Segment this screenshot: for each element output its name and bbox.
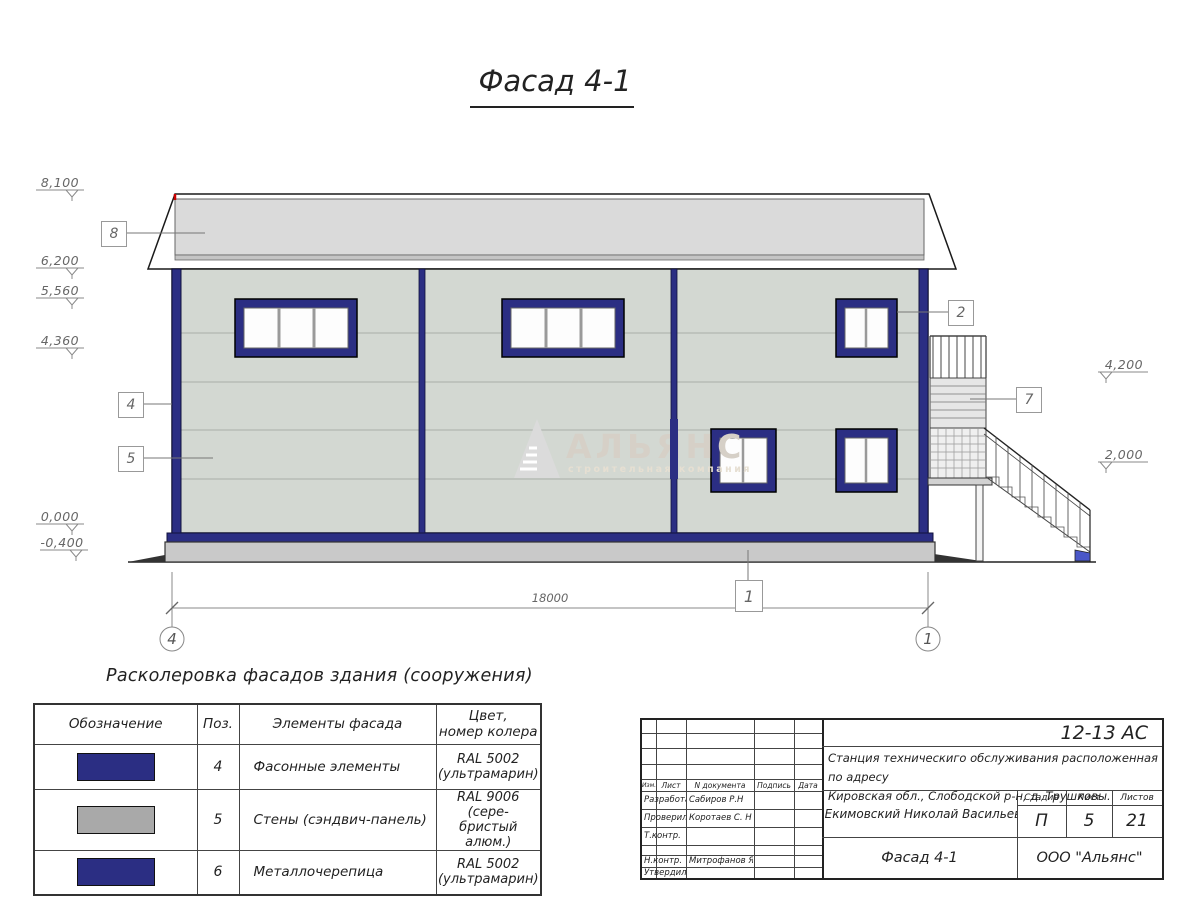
elevation-value: 2,000 xyxy=(1100,447,1148,462)
color-swatch xyxy=(77,753,155,781)
callout-corner-post: 4 xyxy=(118,392,144,418)
window-small-upper-right xyxy=(836,299,897,357)
tb-sheet-value: 5 xyxy=(1066,805,1112,837)
tb-role: Разработал xyxy=(644,791,686,809)
drawing-title: Фасад 4-1 xyxy=(405,64,705,98)
tb-role: Проверил xyxy=(644,809,686,827)
legend-element: Фасонные элементы xyxy=(239,744,436,789)
callout-window: 2 xyxy=(948,300,974,326)
dimension-total: 18000 xyxy=(505,591,595,605)
elevation-value: 4,360 xyxy=(36,333,84,348)
watermark-subtitle: строительная компания xyxy=(568,464,752,475)
legend-element: Стены (сэндвич-панель) xyxy=(239,789,436,850)
legend-row: 5 Стены (сэндвич-панель) RAL 9006 (сере-… xyxy=(34,789,541,850)
tb-name xyxy=(689,827,753,845)
window-lower-right xyxy=(836,429,897,492)
callout-wall: 5 xyxy=(118,446,144,472)
legend-color-line2: (ультрамарин) xyxy=(437,767,541,782)
plinth xyxy=(165,533,935,562)
roof xyxy=(148,194,956,269)
legend-color-line1: RAL 5002 xyxy=(437,857,541,872)
legend-col-designation: Обозначение xyxy=(34,704,197,744)
legend-title: Расколеровка фасадов здания (сооружения) xyxy=(106,666,533,686)
elevation-value: 8,100 xyxy=(36,175,84,190)
legend-color-line1: RAL 5002 xyxy=(437,752,541,767)
tb-name: Сабиров Р.Н xyxy=(689,791,753,809)
panel-joint-left xyxy=(419,269,425,533)
tb-company: ООО "Альянс" xyxy=(1017,837,1162,878)
tb-header-sign: Подпись xyxy=(754,779,794,791)
tb-header-doc: N документа xyxy=(686,779,754,791)
legend-header-row: Обозначение Поз. Элементы фасада Цвет, н… xyxy=(34,704,541,744)
panel-joint-overlay xyxy=(670,419,678,479)
drawing-title-underline xyxy=(470,106,634,108)
color-swatch xyxy=(77,858,155,886)
tb-role xyxy=(644,845,686,855)
axis-number-left: 4 xyxy=(160,627,184,651)
legend-element: Металлочерепица xyxy=(239,850,436,895)
tb-sheets-label: Листов xyxy=(1112,790,1162,805)
tb-stage-value: П xyxy=(1017,805,1066,837)
tb-header-date: Дата xyxy=(794,779,822,791)
legend-col-color-line1: Цвет, xyxy=(437,708,541,724)
color-swatch xyxy=(77,806,155,834)
tb-address-line1: Станция техническиго обслуживания распол… xyxy=(828,749,1160,787)
drawing-sheet: { "drawing": { "title": "Фасад 4-1", "el… xyxy=(0,0,1200,900)
tb-role: Н.контр. xyxy=(644,855,686,867)
legend-col-pos: Поз. xyxy=(197,704,239,744)
tb-client: ИП Екимовский Николай Васильевич xyxy=(822,790,1017,837)
panel-joint-right xyxy=(671,269,677,533)
stair-foot xyxy=(1075,550,1090,561)
watermark-logo xyxy=(514,419,560,478)
legend-pos: 6 xyxy=(197,850,239,895)
legend-col-color-line2: номер колера xyxy=(437,724,541,740)
tb-drawing-name: Фасад 4-1 xyxy=(822,837,1017,878)
legend-pos: 5 xyxy=(197,789,239,850)
callout-stair: 7 xyxy=(1016,387,1042,413)
external-stair xyxy=(928,336,1090,562)
legend-color: RAL 5002 (ультрамарин) xyxy=(436,850,541,895)
legend-pos: 4 xyxy=(197,744,239,789)
corner-post-left xyxy=(172,269,181,533)
tb-name xyxy=(689,867,753,878)
elevation-value: 0,000 xyxy=(36,509,84,524)
elevation-value: -0,400 xyxy=(38,535,86,550)
tb-role: Т.контр. xyxy=(644,827,686,845)
elevation-value: 5,560 xyxy=(36,283,84,298)
tb-header-izm: Изм. xyxy=(642,779,656,791)
legend-col-color: Цвет, номер колера xyxy=(436,704,541,744)
callout-roof: 8 xyxy=(101,221,127,247)
axis-number-right: 1 xyxy=(916,627,940,651)
legend-row: 4 Фасонные элементы RAL 5002 (ультрамари… xyxy=(34,744,541,789)
tb-sheet-label: Лист xyxy=(1066,790,1112,805)
window-large-center xyxy=(502,299,624,357)
tb-name: Коротаев С. Н xyxy=(689,809,753,827)
window-large-left xyxy=(235,299,357,357)
dimension-line xyxy=(160,572,940,651)
title-block: Изм. Лист N документа Подпись Дата Разра… xyxy=(640,718,1164,880)
legend-table: Обозначение Поз. Элементы фасада Цвет, н… xyxy=(33,703,542,896)
tb-stage-label: Стадия xyxy=(1017,790,1066,805)
legend-color-line2: бристый алюм.) xyxy=(437,820,541,850)
watermark-title: АЛЬЯНС xyxy=(566,427,745,466)
tb-name xyxy=(689,845,753,855)
tb-role: Утвердил xyxy=(644,867,686,878)
legend-row: 6 Металлочерепица RAL 5002 (ультрамарин) xyxy=(34,850,541,895)
elevation-value: 4,200 xyxy=(1100,357,1148,372)
tb-sheets-value: 21 xyxy=(1112,805,1162,837)
corner-post-right xyxy=(919,269,928,533)
legend-color: RAL 5002 (ультрамарин) xyxy=(436,744,541,789)
tb-doc-code: 12-13 АС xyxy=(822,720,1162,746)
legend-color-line1: RAL 9006 (сере- xyxy=(437,790,541,820)
legend-col-element: Элементы фасада xyxy=(239,704,436,744)
legend-color: RAL 9006 (сере- бристый алюм.) xyxy=(436,789,541,850)
tb-header-list: Лист xyxy=(656,779,686,791)
callout-plinth: 1 xyxy=(735,580,763,612)
legend-color-line2: (ультрамарин) xyxy=(437,872,541,887)
elevation-value: 6,200 xyxy=(36,253,84,268)
tb-name: Митрофанов Я. А. xyxy=(689,855,753,867)
